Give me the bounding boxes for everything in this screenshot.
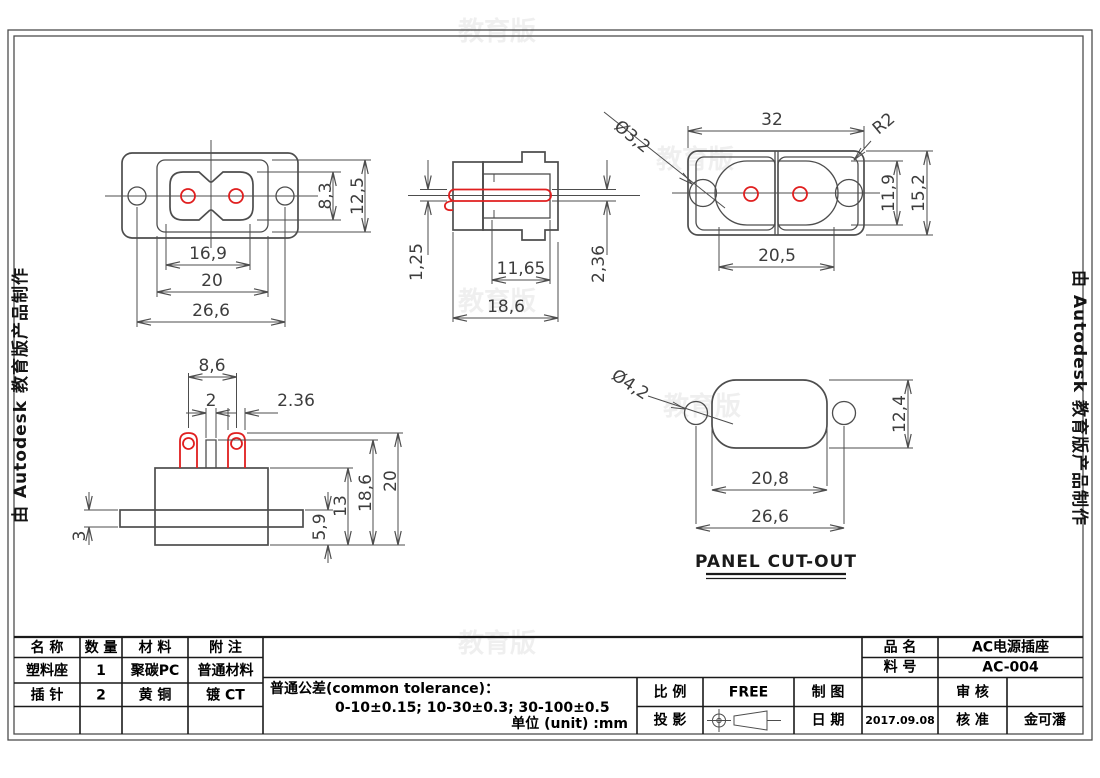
dim-side-pin-width: 2.36 — [277, 391, 315, 411]
panel-cutout-caption: PANEL CUT-OUT — [695, 552, 857, 572]
bom-row-note: 普通材料 — [198, 662, 254, 679]
sheet-frame — [8, 30, 1092, 740]
bom-row-note: 镀 CT — [206, 687, 245, 704]
dim-panel-hole-dia: Ø4,2 — [608, 366, 653, 405]
panel-hole-right — [833, 402, 856, 425]
dim-side-rib: 2 — [206, 391, 217, 411]
dim-section-pin: 2,36 — [589, 245, 609, 283]
tolerance-title: 普通公差(common tolerance)： — [270, 680, 499, 697]
dim-rear-corner-radius: R2 — [869, 109, 899, 139]
dim-panel-slot: 20,8 — [751, 469, 789, 489]
bom-header-note: 附 注 — [209, 639, 242, 656]
bom-header-qty: 数 量 — [85, 639, 118, 656]
part-label: 料 号 — [884, 659, 917, 676]
dim-front-slot-width: 16,9 — [189, 244, 227, 264]
bom-header-material: 材 料 — [139, 639, 172, 656]
bom-row-material: 黄 铜 — [139, 687, 172, 704]
ghost-watermark: 教育版 — [656, 144, 734, 175]
view-section: 1,25 2,36 11,65 18,6 — [407, 152, 640, 322]
unit-note: 单位 (unit) :mm — [511, 715, 628, 732]
rear-pin-left — [744, 187, 758, 201]
bom-row-material: 聚碳PC — [130, 662, 180, 679]
dim-front-slot-height: 8,3 — [316, 182, 336, 209]
scale-label: 比 例 — [654, 684, 687, 701]
ghost-watermark: 教育版 — [458, 628, 536, 659]
dim-rear-width: 32 — [761, 110, 783, 130]
cad-canvas: 教育版 教育版 教育版 教育版 教育版 由 Autodesk 教育版产品制作 由… — [0, 0, 1100, 778]
dim-side-mid: 18,6 — [356, 474, 376, 512]
dim-side-flange: 3 — [70, 531, 90, 542]
ghost-watermark: 教育版 — [458, 16, 536, 47]
dim-front-hole-span: 26,6 — [192, 301, 230, 321]
product-label: 品 名 — [884, 639, 917, 656]
date-value: 2017.09.08 — [865, 714, 935, 727]
projection-label: 投 影 — [654, 713, 687, 729]
dim-rear-outer-height: 15,2 — [909, 174, 929, 212]
draft-label: 制 图 — [812, 684, 845, 701]
approve-value: 金可潘 — [1023, 712, 1067, 729]
ghost-watermark: 教育版 — [663, 391, 741, 422]
dim-rear-slot: 20,5 — [758, 246, 796, 266]
scale-value: FREE — [729, 685, 768, 701]
product-value: AC电源插座 — [972, 639, 1049, 656]
view-panel-cutout: Ø4,2 20,8 26,6 12,4 PANEL CUT-OUT — [608, 366, 913, 579]
view-rear: 32 20,5 11,9 15,2 R2 — [672, 109, 933, 271]
dim-section-tail: 1,25 — [407, 243, 427, 281]
dim-section-depth: 11,65 — [497, 259, 546, 279]
date-label: 日 期 — [812, 713, 845, 729]
center-rib — [206, 440, 216, 468]
third-angle-projection-icon — [707, 709, 781, 732]
dim-side-step: 5,9 — [310, 513, 330, 540]
dim-side-pin-span: 8,6 — [198, 356, 225, 376]
bom-header-name: 名 称 — [31, 639, 64, 656]
dim-rear-inner-height: 11,9 — [879, 174, 899, 212]
dim-rear-hole-dia: Ø3,2 — [610, 117, 654, 158]
title-block: 名 称 数 量 材 料 附 注 塑料座 1 聚碳PC 普通材料 插 针 2 黄 … — [14, 637, 1083, 734]
bom-row-qty: 1 — [96, 663, 106, 679]
rear-pin-right — [793, 187, 807, 201]
part-value: AC-004 — [982, 660, 1039, 676]
tolerance-values: 0-10±0.15; 10-30±0.3; 30-100±0.5 — [335, 700, 610, 716]
bom-row-name: 插 针 — [31, 687, 64, 704]
right-watermark: 由 Autodesk 教育版产品制作 — [1069, 270, 1090, 526]
bom-row-qty: 2 — [96, 688, 106, 704]
view-side: 8,6 2 2.36 3 5,9 13 18,6 20 — [70, 356, 405, 563]
dim-panel-span: 26,6 — [751, 507, 789, 527]
drawing-sheet: 教育版 教育版 教育版 教育版 教育版 由 Autodesk 教育版产品制作 由… — [0, 0, 1100, 778]
view-front: 16,9 20 26,6 8,3 12,5 — [105, 140, 371, 327]
pin-tail-hook — [445, 201, 453, 210]
dim-panel-height: 12,4 — [890, 395, 910, 433]
dim-section-total: 18,6 — [487, 297, 525, 317]
review-label: 审 核 — [956, 684, 989, 701]
dim-side-total: 20 — [381, 470, 401, 492]
dim-front-body-width: 20 — [201, 271, 223, 291]
dim-front-body-height: 12,5 — [348, 177, 368, 215]
bom-row-name: 塑料座 — [26, 662, 68, 679]
left-watermark: 由 Autodesk 教育版产品制作 — [10, 267, 31, 523]
approve-label: 核 准 — [956, 712, 989, 729]
dim-side-body: 13 — [331, 495, 351, 517]
